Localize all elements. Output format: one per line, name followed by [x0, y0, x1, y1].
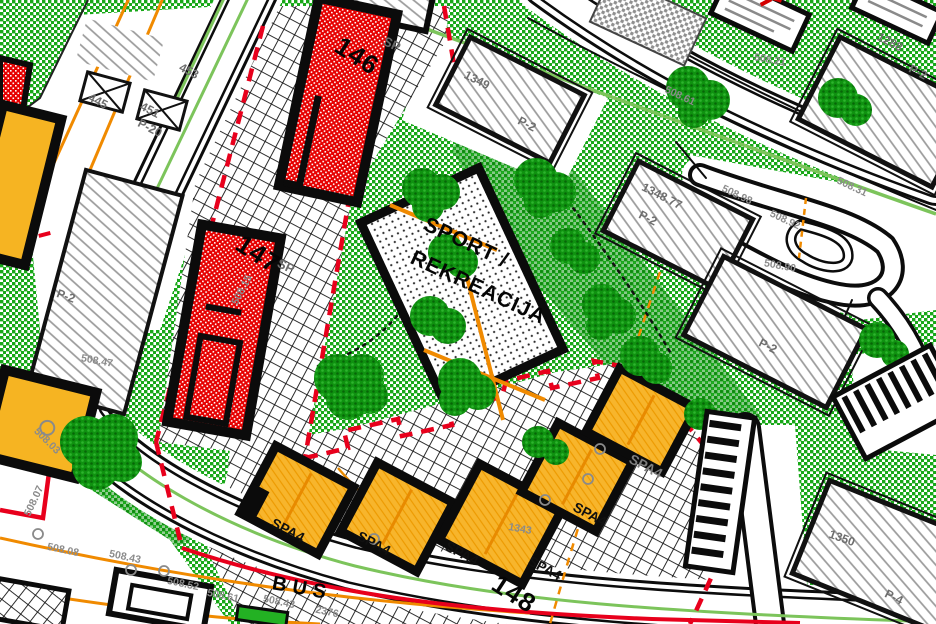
zoning-map-canvas — [0, 0, 936, 624]
zoning-map: 146147148SPSPSPORT /REKREACIJASPA4SPA4SP… — [0, 0, 936, 624]
